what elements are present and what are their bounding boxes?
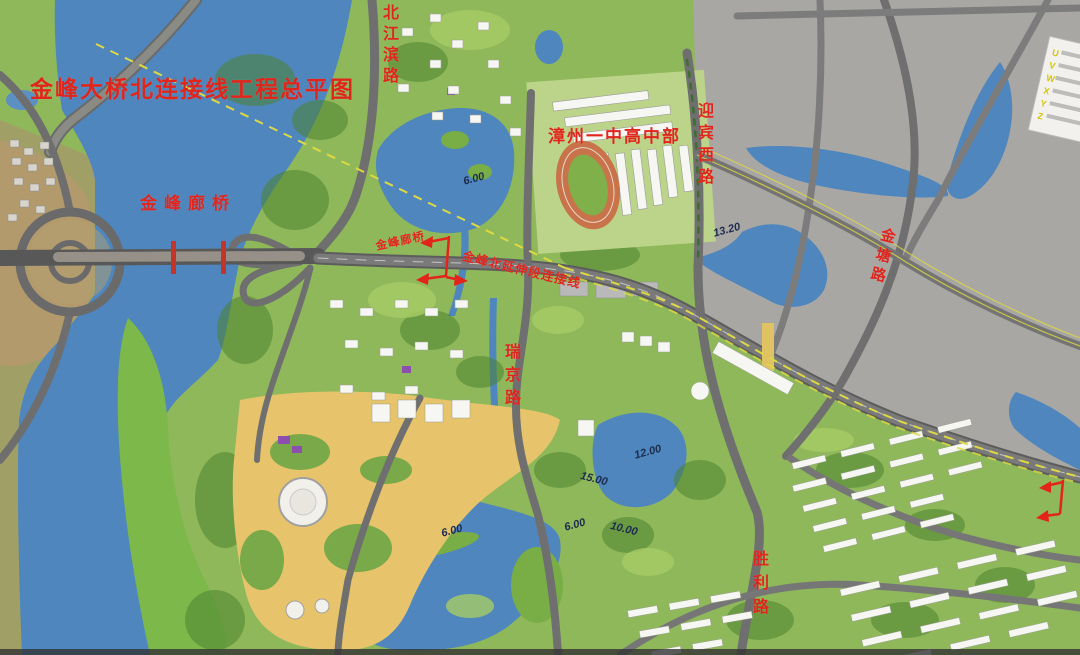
- bottom-edge-strip: [0, 649, 1080, 655]
- dome-building: [691, 382, 709, 400]
- bridge-pier: [171, 241, 176, 274]
- label-shengli-road: 胜利路: [750, 550, 766, 622]
- bridge-pier: [221, 241, 226, 274]
- label-jinfeng-gallery-bridge: 金峰廊桥: [140, 195, 236, 212]
- label-yingbin-west-road: 迎宾西路: [695, 102, 711, 190]
- plan-title: 金峰大桥北连接线工程总平图: [30, 78, 355, 101]
- label-beijiangbin-road: 北江滨路: [380, 4, 396, 88]
- label-school: 漳州一中高中部: [548, 128, 681, 145]
- label-ruijing-road: 瑞京路: [502, 343, 518, 412]
- master-plan-map: U V W X Y Z 金峰大桥北连接线工程总平图 北江滨路 漳州一中高中部 迎…: [0, 0, 1080, 655]
